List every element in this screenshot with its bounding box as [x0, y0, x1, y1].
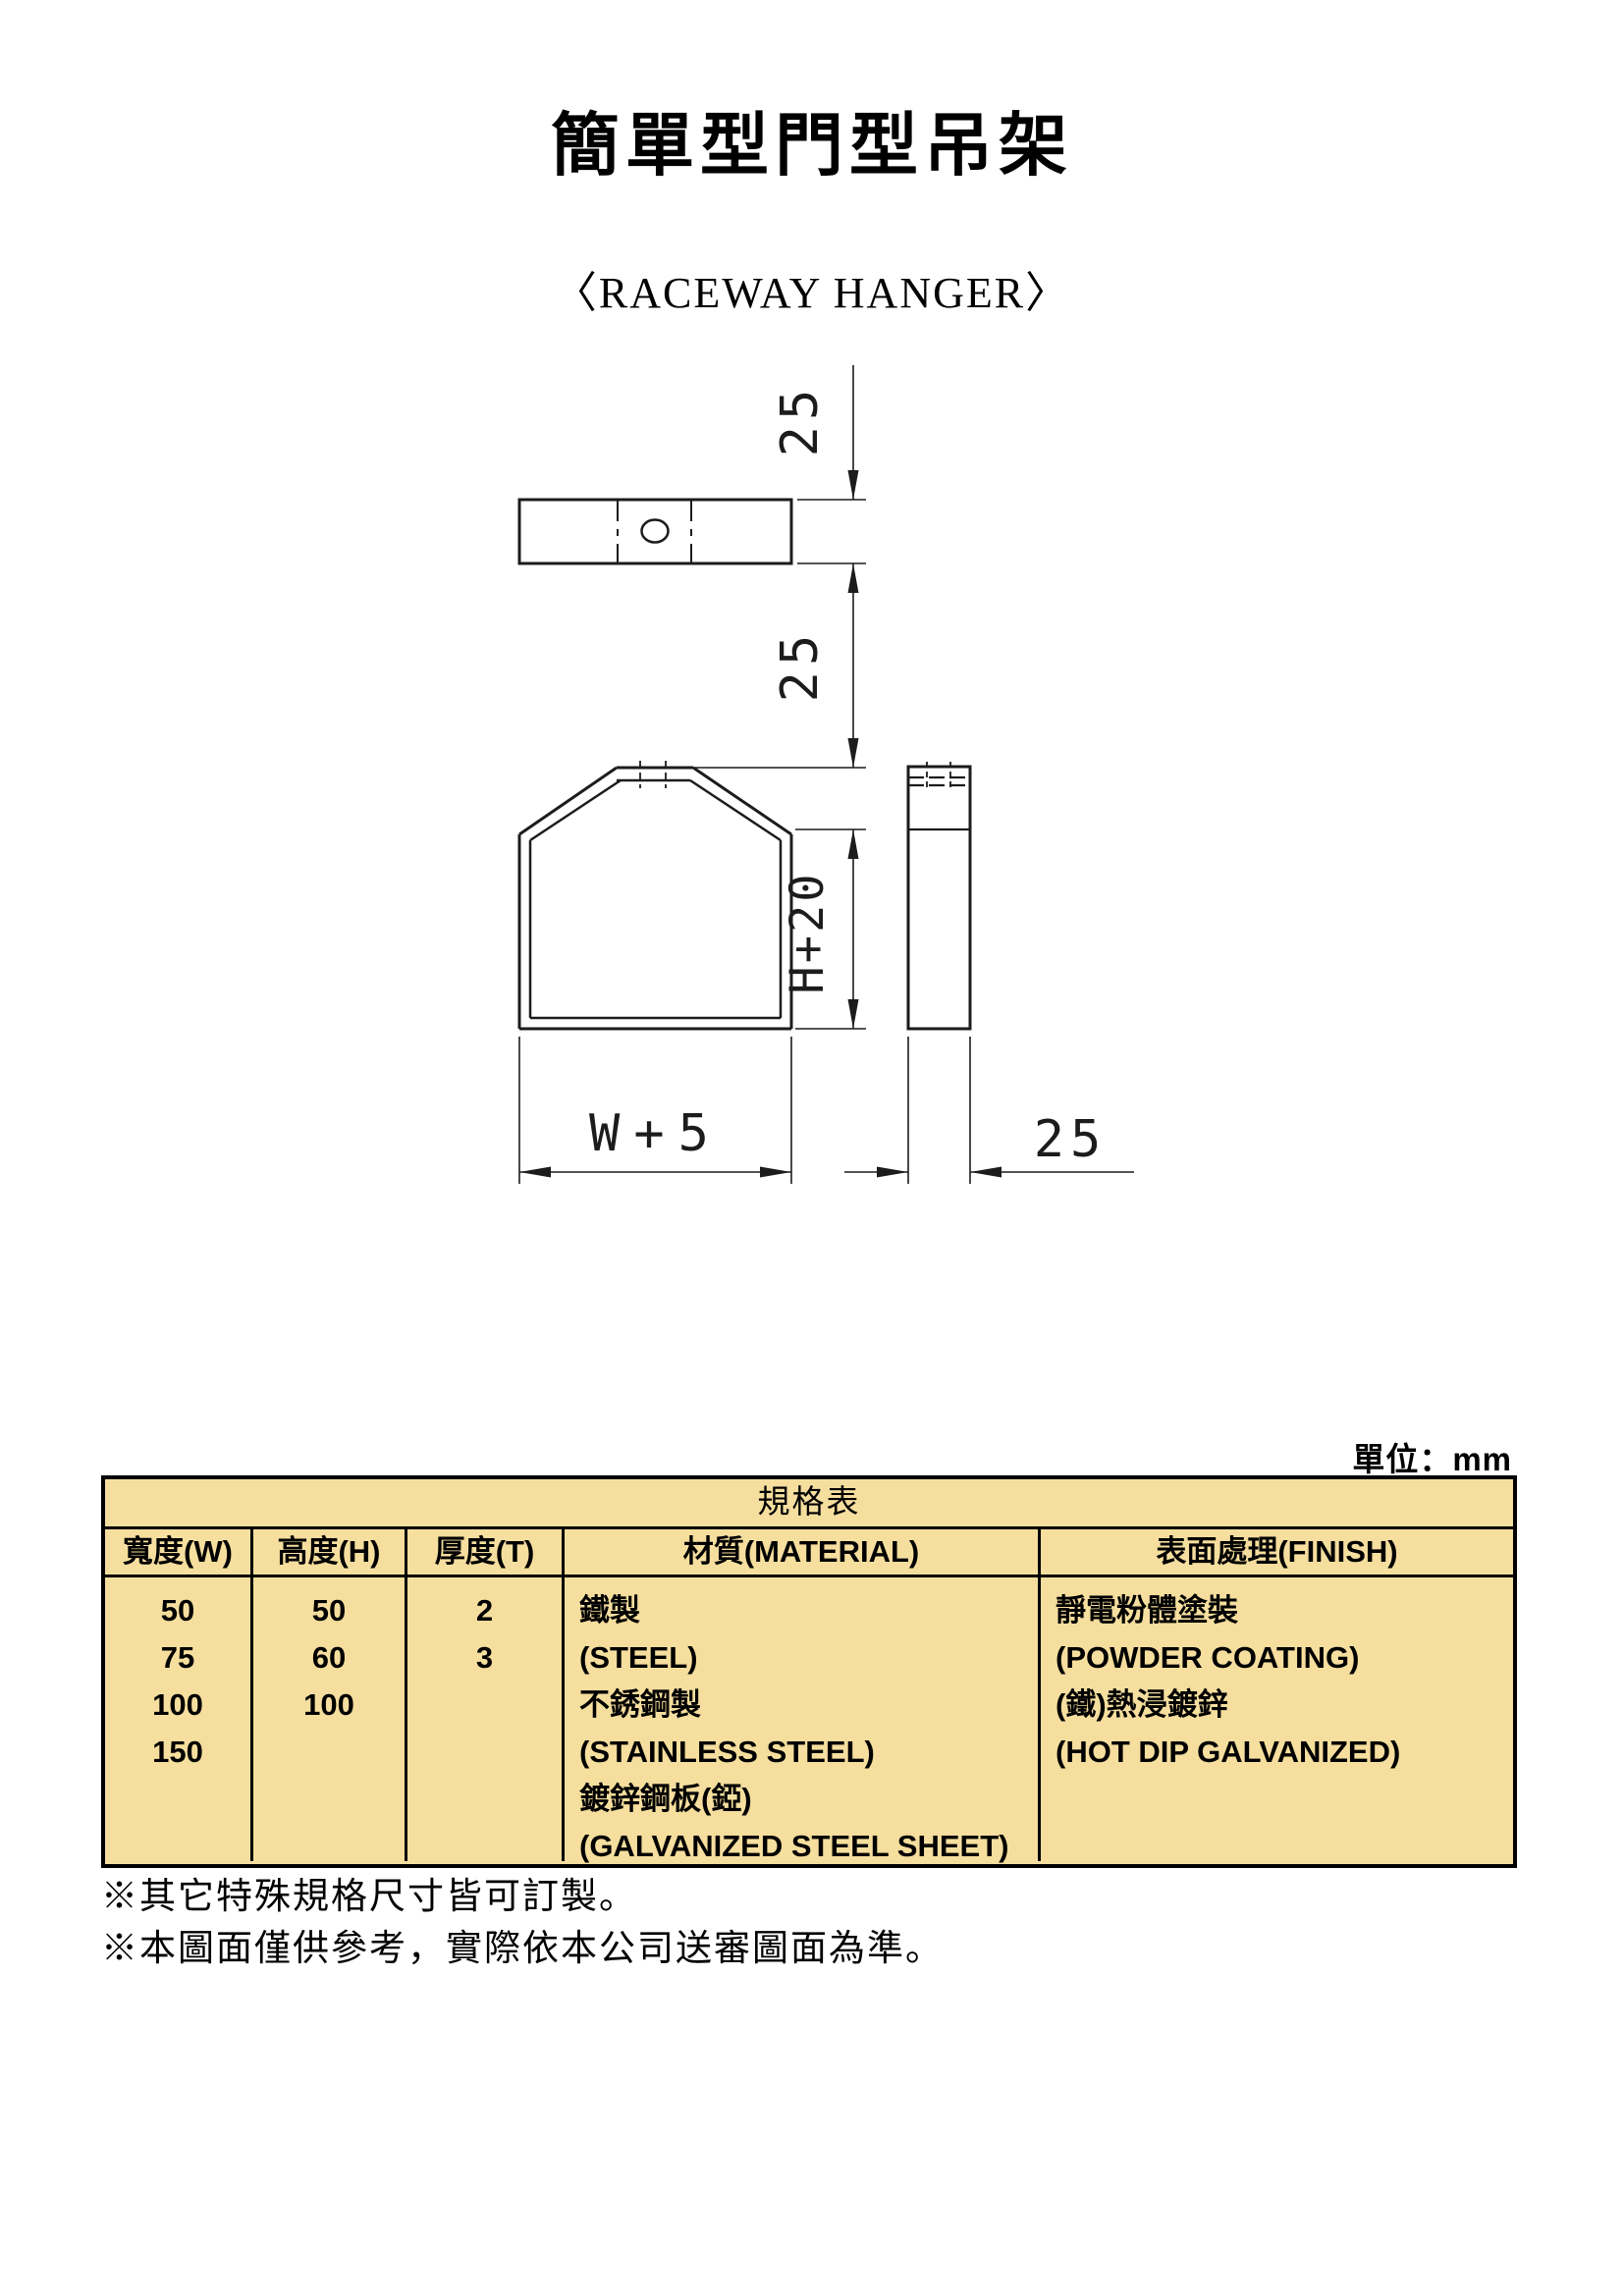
column-width-values: 50 75 100 150 [105, 1577, 253, 1861]
material-line: 鍍鋅鋼板(錏) [579, 1778, 1038, 1825]
page-title: 簡單型門型吊架 [0, 90, 1624, 189]
dimension-arrows [519, 470, 1001, 1178]
width-value: 75 [105, 1636, 250, 1683]
dim-label-body-height: H+20 [781, 871, 835, 993]
technical-drawing: 25 25 H+20 W+5 25 [0, 0, 1624, 1276]
header-finish: 表面處理(FINISH) [1041, 1529, 1513, 1577]
header-width: 寬度(W) [105, 1529, 253, 1577]
dim-label-body-width: W+5 [589, 1104, 723, 1163]
finish-line: (HOT DIP GALVANIZED) [1056, 1731, 1513, 1778]
material-line: (GALVANIZED STEEL SHEET) [579, 1825, 1038, 1872]
extension-lines [519, 500, 970, 1184]
width-value: 150 [105, 1731, 250, 1778]
footnote: ※其它特殊規格尺寸皆可訂製。 [101, 1871, 944, 1923]
header-height: 高度(H) [253, 1529, 407, 1577]
spec-table: 規格表 寬度(W) 高度(H) 厚度(T) 材質(MATERIAL) 表面處理(… [101, 1475, 1517, 1868]
column-height-values: 50 60 100 [253, 1577, 407, 1861]
width-value: 100 [105, 1683, 250, 1731]
front-view-body [519, 761, 791, 1029]
height-value: 60 [253, 1636, 405, 1683]
thickness-value: 3 [407, 1636, 562, 1683]
footnotes: ※其它特殊規格尺寸皆可訂製。 ※本圖面僅供參考，實際依本公司送審圖面為準。 [101, 1871, 944, 1975]
dim-label-side-width: 25 [1034, 1110, 1108, 1169]
dim-label-bar-thickness: 25 [771, 384, 830, 457]
document-page: 簡單型門型吊架 〈RACEWAY HANGER〉 [0, 0, 1624, 2296]
width-value: 50 [105, 1589, 250, 1636]
header-material: 材質(MATERIAL) [565, 1529, 1041, 1577]
finish-line: 靜電粉體塗裝 [1056, 1589, 1513, 1636]
height-value: 50 [253, 1589, 405, 1636]
column-material: 鐵製 (STEEL) 不銹鋼製 (STAINLESS STEEL) 鍍鋅鋼板(錏… [565, 1577, 1041, 1861]
spec-table-header-row: 寬度(W) 高度(H) 厚度(T) 材質(MATERIAL) 表面處理(FINI… [105, 1529, 1513, 1577]
finish-line: (POWDER COATING) [1056, 1636, 1513, 1683]
dim-label-top-offset: 25 [771, 629, 830, 703]
material-line: (STEEL) [579, 1636, 1038, 1683]
page-subtitle: 〈RACEWAY HANGER〉 [0, 257, 1624, 320]
material-line: (STAINLESS STEEL) [579, 1731, 1038, 1778]
bolt-hole [642, 520, 669, 543]
thickness-value: 2 [407, 1589, 562, 1636]
side-view-body [908, 762, 970, 1029]
unit-label: 單位：mm [101, 1433, 1512, 1480]
material-line: 不銹鋼製 [579, 1683, 1038, 1731]
header-thickness: 厚度(T) [407, 1529, 565, 1577]
dimension-lines [519, 365, 1134, 1172]
column-finish: 靜電粉體塗裝 (POWDER COATING) (鐵)熱浸鍍鋅 (HOT DIP… [1041, 1577, 1513, 1861]
spec-table-body: 50 75 100 150 50 60 100 2 3 鐵製 (STEEL) 不… [105, 1577, 1513, 1861]
height-value: 100 [253, 1683, 405, 1731]
finish-line: (鐵)熱浸鍍鋅 [1056, 1683, 1513, 1731]
footnote: ※本圖面僅供參考，實際依本公司送審圖面為準。 [101, 1923, 944, 1975]
column-thickness-values: 2 3 [407, 1577, 565, 1861]
top-view-bar [519, 500, 791, 563]
spec-table-title: 規格表 [105, 1479, 1513, 1529]
material-line: 鐵製 [579, 1589, 1038, 1636]
